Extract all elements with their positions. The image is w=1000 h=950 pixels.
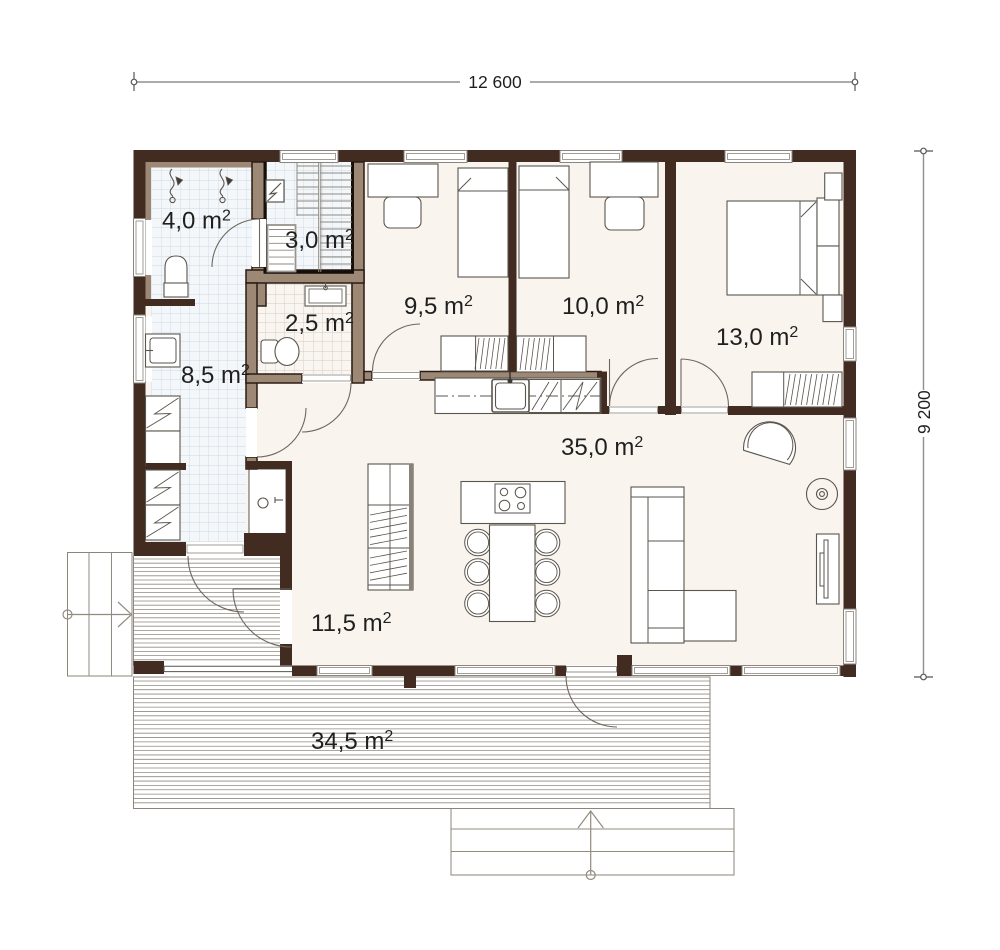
svg-text:13,0 m2: 13,0 m2 <box>716 324 798 351</box>
svg-text:11,5 m2: 11,5 m2 <box>311 610 392 637</box>
svg-text:10,0 m2: 10,0 m2 <box>562 293 644 320</box>
svg-text:8,5 m2: 8,5 m2 <box>181 362 250 389</box>
svg-text:2,5 m2: 2,5 m2 <box>285 310 354 337</box>
svg-text:12 600: 12 600 <box>468 72 522 92</box>
svg-text:4,0 m2: 4,0 m2 <box>162 208 231 235</box>
svg-text:9,5 m2: 9,5 m2 <box>404 293 473 320</box>
svg-text:35,0 m2: 35,0 m2 <box>561 434 643 461</box>
svg-text:3,0 m2: 3,0 m2 <box>285 227 354 254</box>
svg-text:9 200: 9 200 <box>914 390 934 434</box>
svg-text:34,5 m2: 34,5 m2 <box>311 728 393 755</box>
